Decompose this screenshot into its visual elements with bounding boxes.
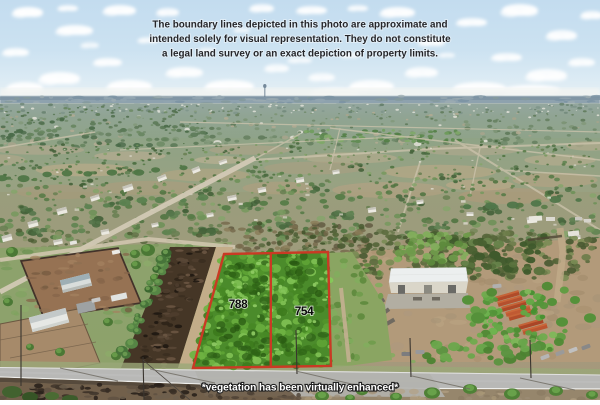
svg-text:intended solely for visual rep: intended solely for visual representatio… [149, 34, 451, 45]
svg-text:a legal land survey or an exac: a legal land survey or an exact depictio… [162, 49, 438, 60]
svg-text:The boundary lines depicted in: The boundary lines depicted in this phot… [152, 20, 447, 31]
svg-text:754: 754 [295, 304, 314, 318]
svg-text:788: 788 [229, 297, 248, 311]
svg-text:*vegetation has been virtually: *vegetation has been virtually enhanced* [202, 383, 398, 394]
